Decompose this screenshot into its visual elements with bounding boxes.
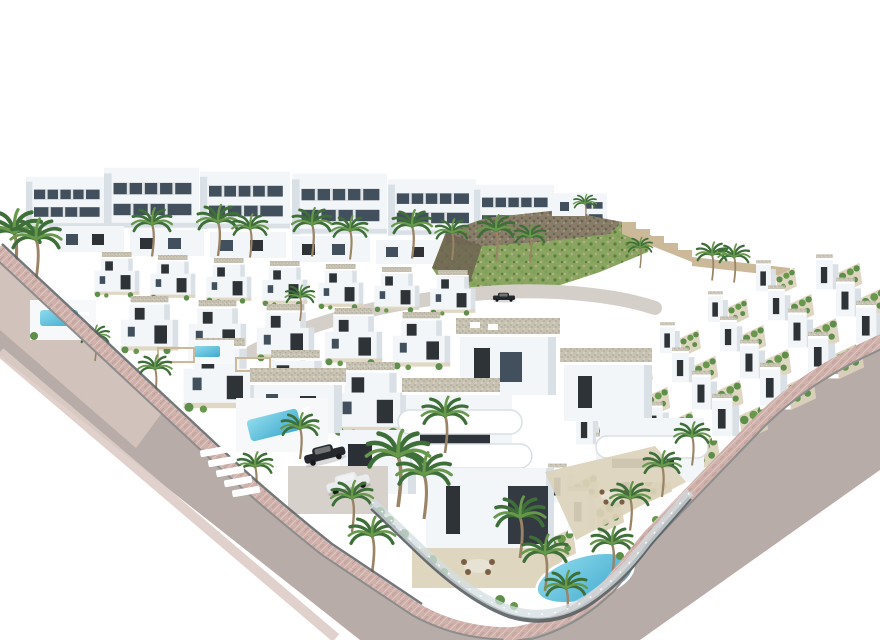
hilltop-villa [552, 196, 586, 216]
window-recess [446, 486, 460, 534]
mid-house [130, 230, 204, 256]
gravel-roof [560, 348, 652, 364]
field-villa [393, 312, 450, 370]
back-villa [292, 174, 387, 235]
render-canvas: Aerial 3D architectural rendering of a w… [0, 0, 880, 640]
mid-house [376, 240, 442, 264]
mid-house [210, 232, 286, 258]
curved-balcony [398, 410, 522, 434]
mid-house [292, 236, 370, 262]
gravel-roof [402, 378, 500, 394]
pool [194, 346, 220, 357]
aerial-render: Aerial 3D architectural rendering of a w… [0, 0, 880, 640]
field-villa [318, 264, 363, 310]
field-villa [325, 308, 382, 366]
field-villa [150, 255, 195, 301]
gravel-roof [250, 368, 346, 384]
field-villa [121, 296, 178, 354]
mid-house [58, 226, 124, 252]
window-recess [578, 376, 592, 408]
field-villa [206, 258, 251, 304]
outdoor-dining-set [461, 559, 495, 575]
field-villa [374, 267, 419, 313]
field-villa [94, 252, 139, 298]
field-villa [430, 270, 475, 316]
